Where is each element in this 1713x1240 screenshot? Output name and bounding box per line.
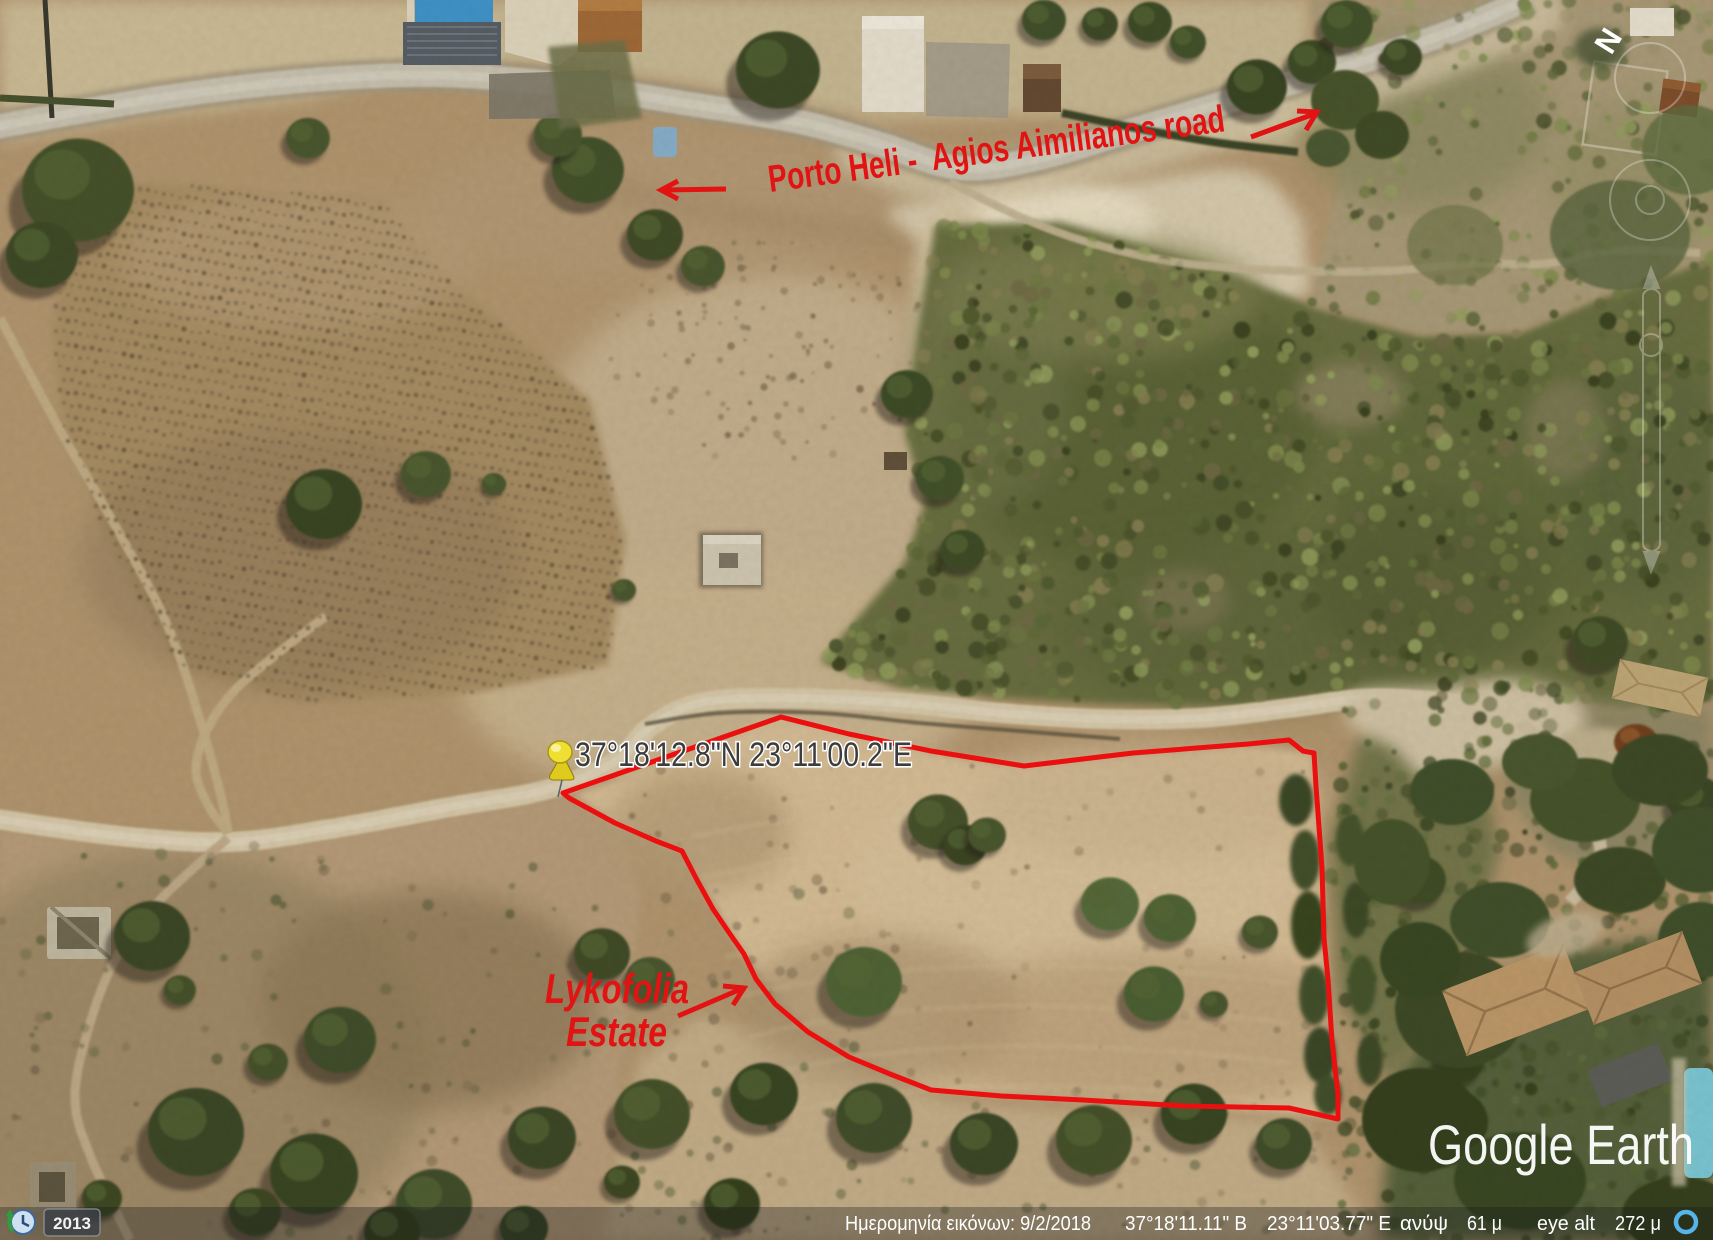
svg-text:Ημερομηνία εικόνων: 9/2/2018: Ημερομηνία εικόνων: 9/2/2018 <box>845 1213 1091 1235</box>
svg-text:Estate: Estate <box>566 1008 667 1055</box>
svg-text:37°18'11.11" Β: 37°18'11.11" Β <box>1125 1213 1247 1235</box>
svg-text:Lykofolia: Lykofolia <box>545 965 689 1012</box>
svg-text:37°18'12.8"N 23°11'00.2"E: 37°18'12.8"N 23°11'00.2"E <box>575 736 912 774</box>
svg-text:2013: 2013 <box>53 1214 91 1233</box>
svg-text:23°11'03.77" Ε: 23°11'03.77" Ε <box>1267 1213 1391 1235</box>
svg-text:eye alt: eye alt <box>1537 1213 1595 1235</box>
svg-text:Google Earth: Google Earth <box>1428 1113 1694 1176</box>
svg-text:ανύψ: ανύψ <box>1400 1213 1448 1235</box>
svg-text:272 μ: 272 μ <box>1615 1213 1661 1235</box>
svg-text:61 μ: 61 μ <box>1467 1213 1502 1235</box>
